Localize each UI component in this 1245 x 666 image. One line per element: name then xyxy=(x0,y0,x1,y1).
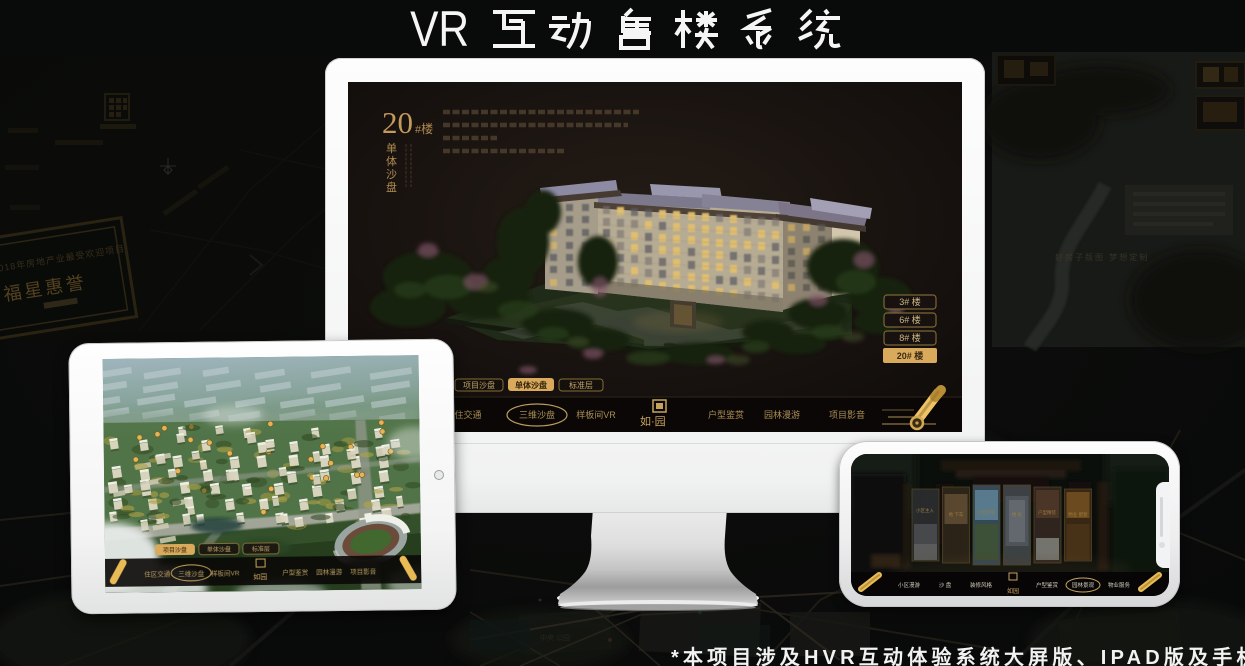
svg-text:户型鉴赏: 户型鉴赏 xyxy=(1036,581,1059,589)
svg-text:住区交通: 住区交通 xyxy=(144,569,171,578)
svg-text:户型鉴赏: 户型鉴赏 xyxy=(282,567,309,576)
svg-text:单体沙盘: 单体沙盘 xyxy=(207,545,231,553)
svg-text:沙: 沙 xyxy=(386,168,397,181)
svg-text:如园: 如园 xyxy=(1007,587,1019,595)
svg-text:地 下车: 地 下车 xyxy=(949,511,964,518)
svg-text:标准层: 标准层 xyxy=(252,545,270,553)
svg-text:户型精装: 户型精装 xyxy=(1038,509,1056,516)
svg-text:项目沙盘: 项目沙盘 xyxy=(463,380,495,390)
svg-text:标准层: 标准层 xyxy=(569,380,593,390)
svg-text:样板间VR: 样板间VR xyxy=(211,568,240,577)
svg-text:单: 单 xyxy=(386,142,397,155)
svg-text:小区漫游: 小区漫游 xyxy=(898,581,921,589)
svg-text:20# 楼: 20# 楼 xyxy=(897,350,924,361)
svg-text:6# 楼: 6# 楼 xyxy=(899,314,921,325)
svg-text:如·园: 如·园 xyxy=(640,414,666,428)
svg-text:小区环境: 小区环境 xyxy=(977,509,995,516)
svg-text:住交通: 住交通 xyxy=(454,409,481,420)
svg-text:体: 体 xyxy=(386,154,397,168)
svg-text:样板间VR: 样板间VR xyxy=(576,409,616,420)
svg-text:三维沙盘: 三维沙盘 xyxy=(178,569,205,578)
svg-text:园林漫游: 园林漫游 xyxy=(316,567,343,576)
svg-text:#楼: #楼 xyxy=(415,121,433,136)
svg-text:园林景观: 园林景观 xyxy=(1072,581,1095,589)
svg-text:单体沙盘: 单体沙盘 xyxy=(515,380,547,390)
svg-text:3# 楼: 3# 楼 xyxy=(899,296,921,307)
svg-text:物业 配套: 物业 配套 xyxy=(1068,511,1088,518)
svg-text:VR: VR xyxy=(410,4,469,52)
svg-text:8# 楼: 8# 楼 xyxy=(899,332,921,343)
svg-text:20: 20 xyxy=(382,105,413,140)
svg-text:户型鉴赏: 户型鉴赏 xyxy=(708,409,744,420)
svg-text:三维沙盘: 三维沙盘 xyxy=(519,409,555,420)
svg-text:如园: 如园 xyxy=(253,572,267,581)
svg-text:楼 栋: 楼 栋 xyxy=(1012,511,1023,518)
svg-text:小区主入: 小区主入 xyxy=(916,507,934,514)
svg-text:物业服务: 物业服务 xyxy=(1108,581,1131,589)
svg-text:项目影音: 项目影音 xyxy=(829,409,865,420)
svg-text:盘: 盘 xyxy=(386,180,397,194)
svg-text:项目影音: 项目影音 xyxy=(350,567,377,576)
svg-text:装修风格: 装修风格 xyxy=(970,581,993,589)
svg-text:沙 盘: 沙 盘 xyxy=(939,581,952,589)
svg-text:园林漫游: 园林漫游 xyxy=(764,409,800,420)
